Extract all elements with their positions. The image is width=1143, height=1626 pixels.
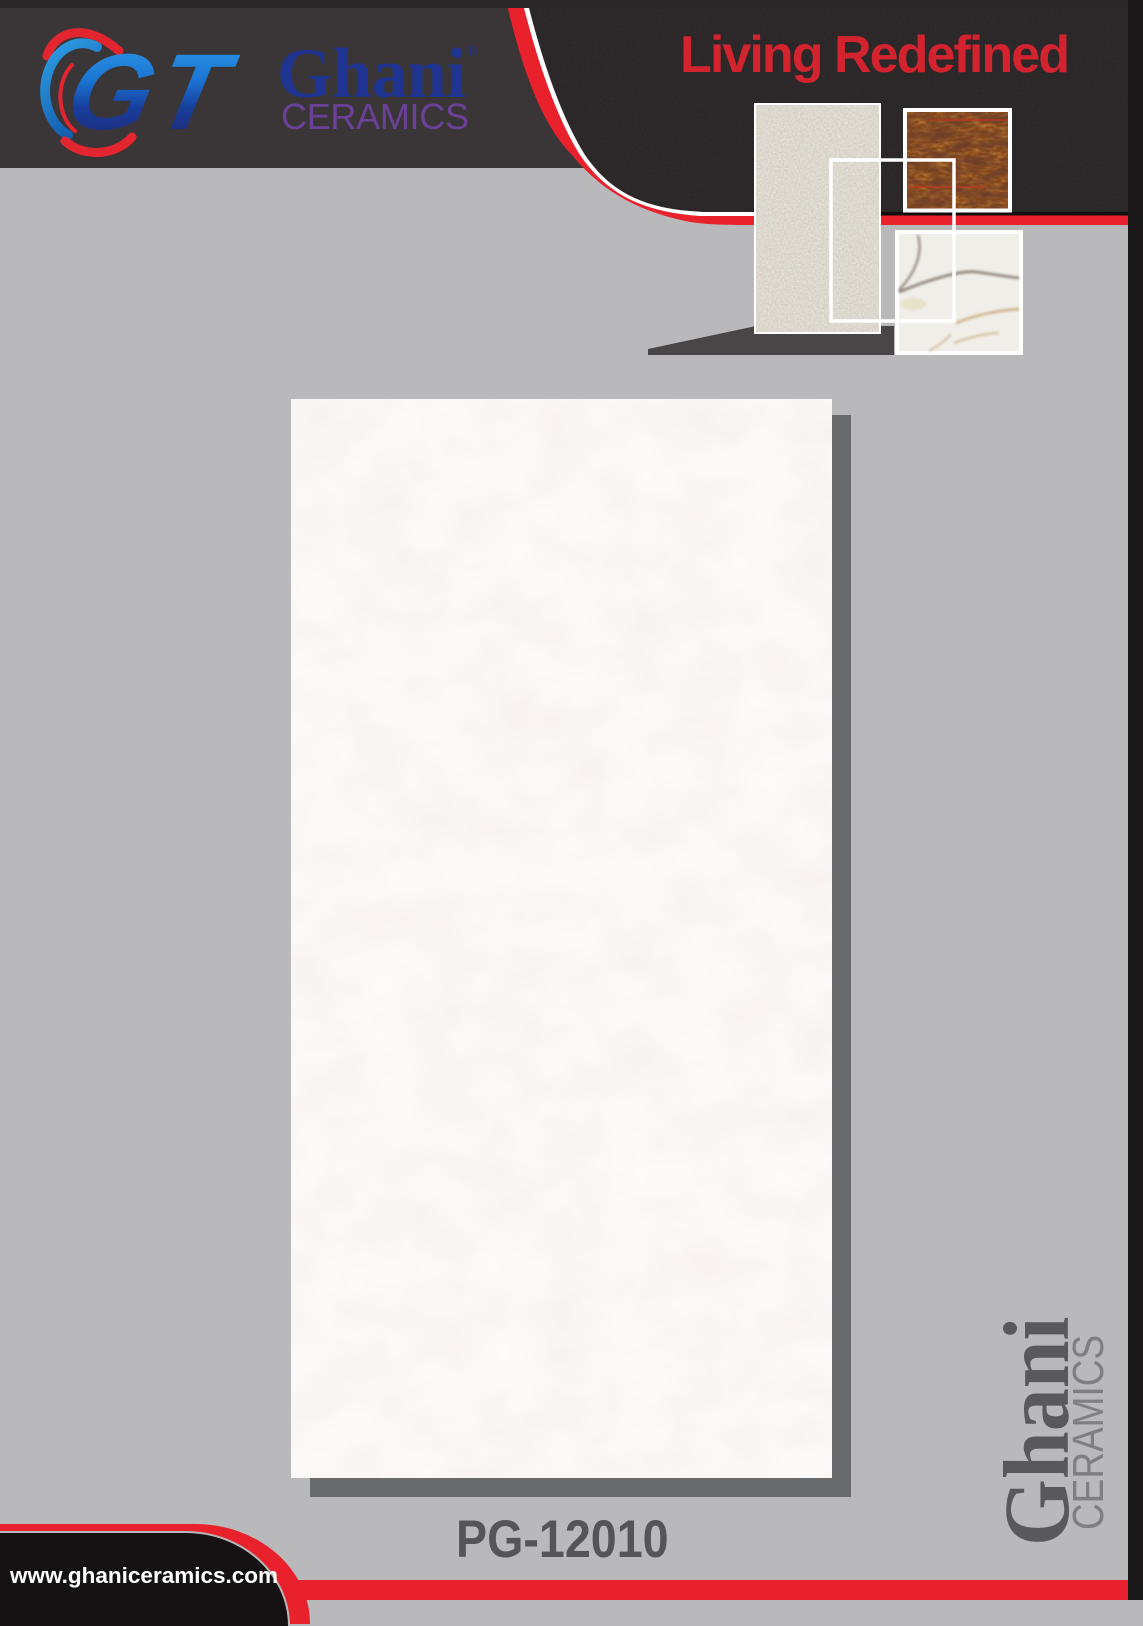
svg-text:CERAMICS: CERAMICS (1063, 1335, 1113, 1530)
svg-text:Living Redefined: Living Redefined (680, 26, 1070, 84)
svg-text:GT: GT (57, 32, 246, 153)
svg-text:®: ® (466, 43, 478, 60)
svg-text:CERAMICS: CERAMICS (281, 96, 469, 137)
